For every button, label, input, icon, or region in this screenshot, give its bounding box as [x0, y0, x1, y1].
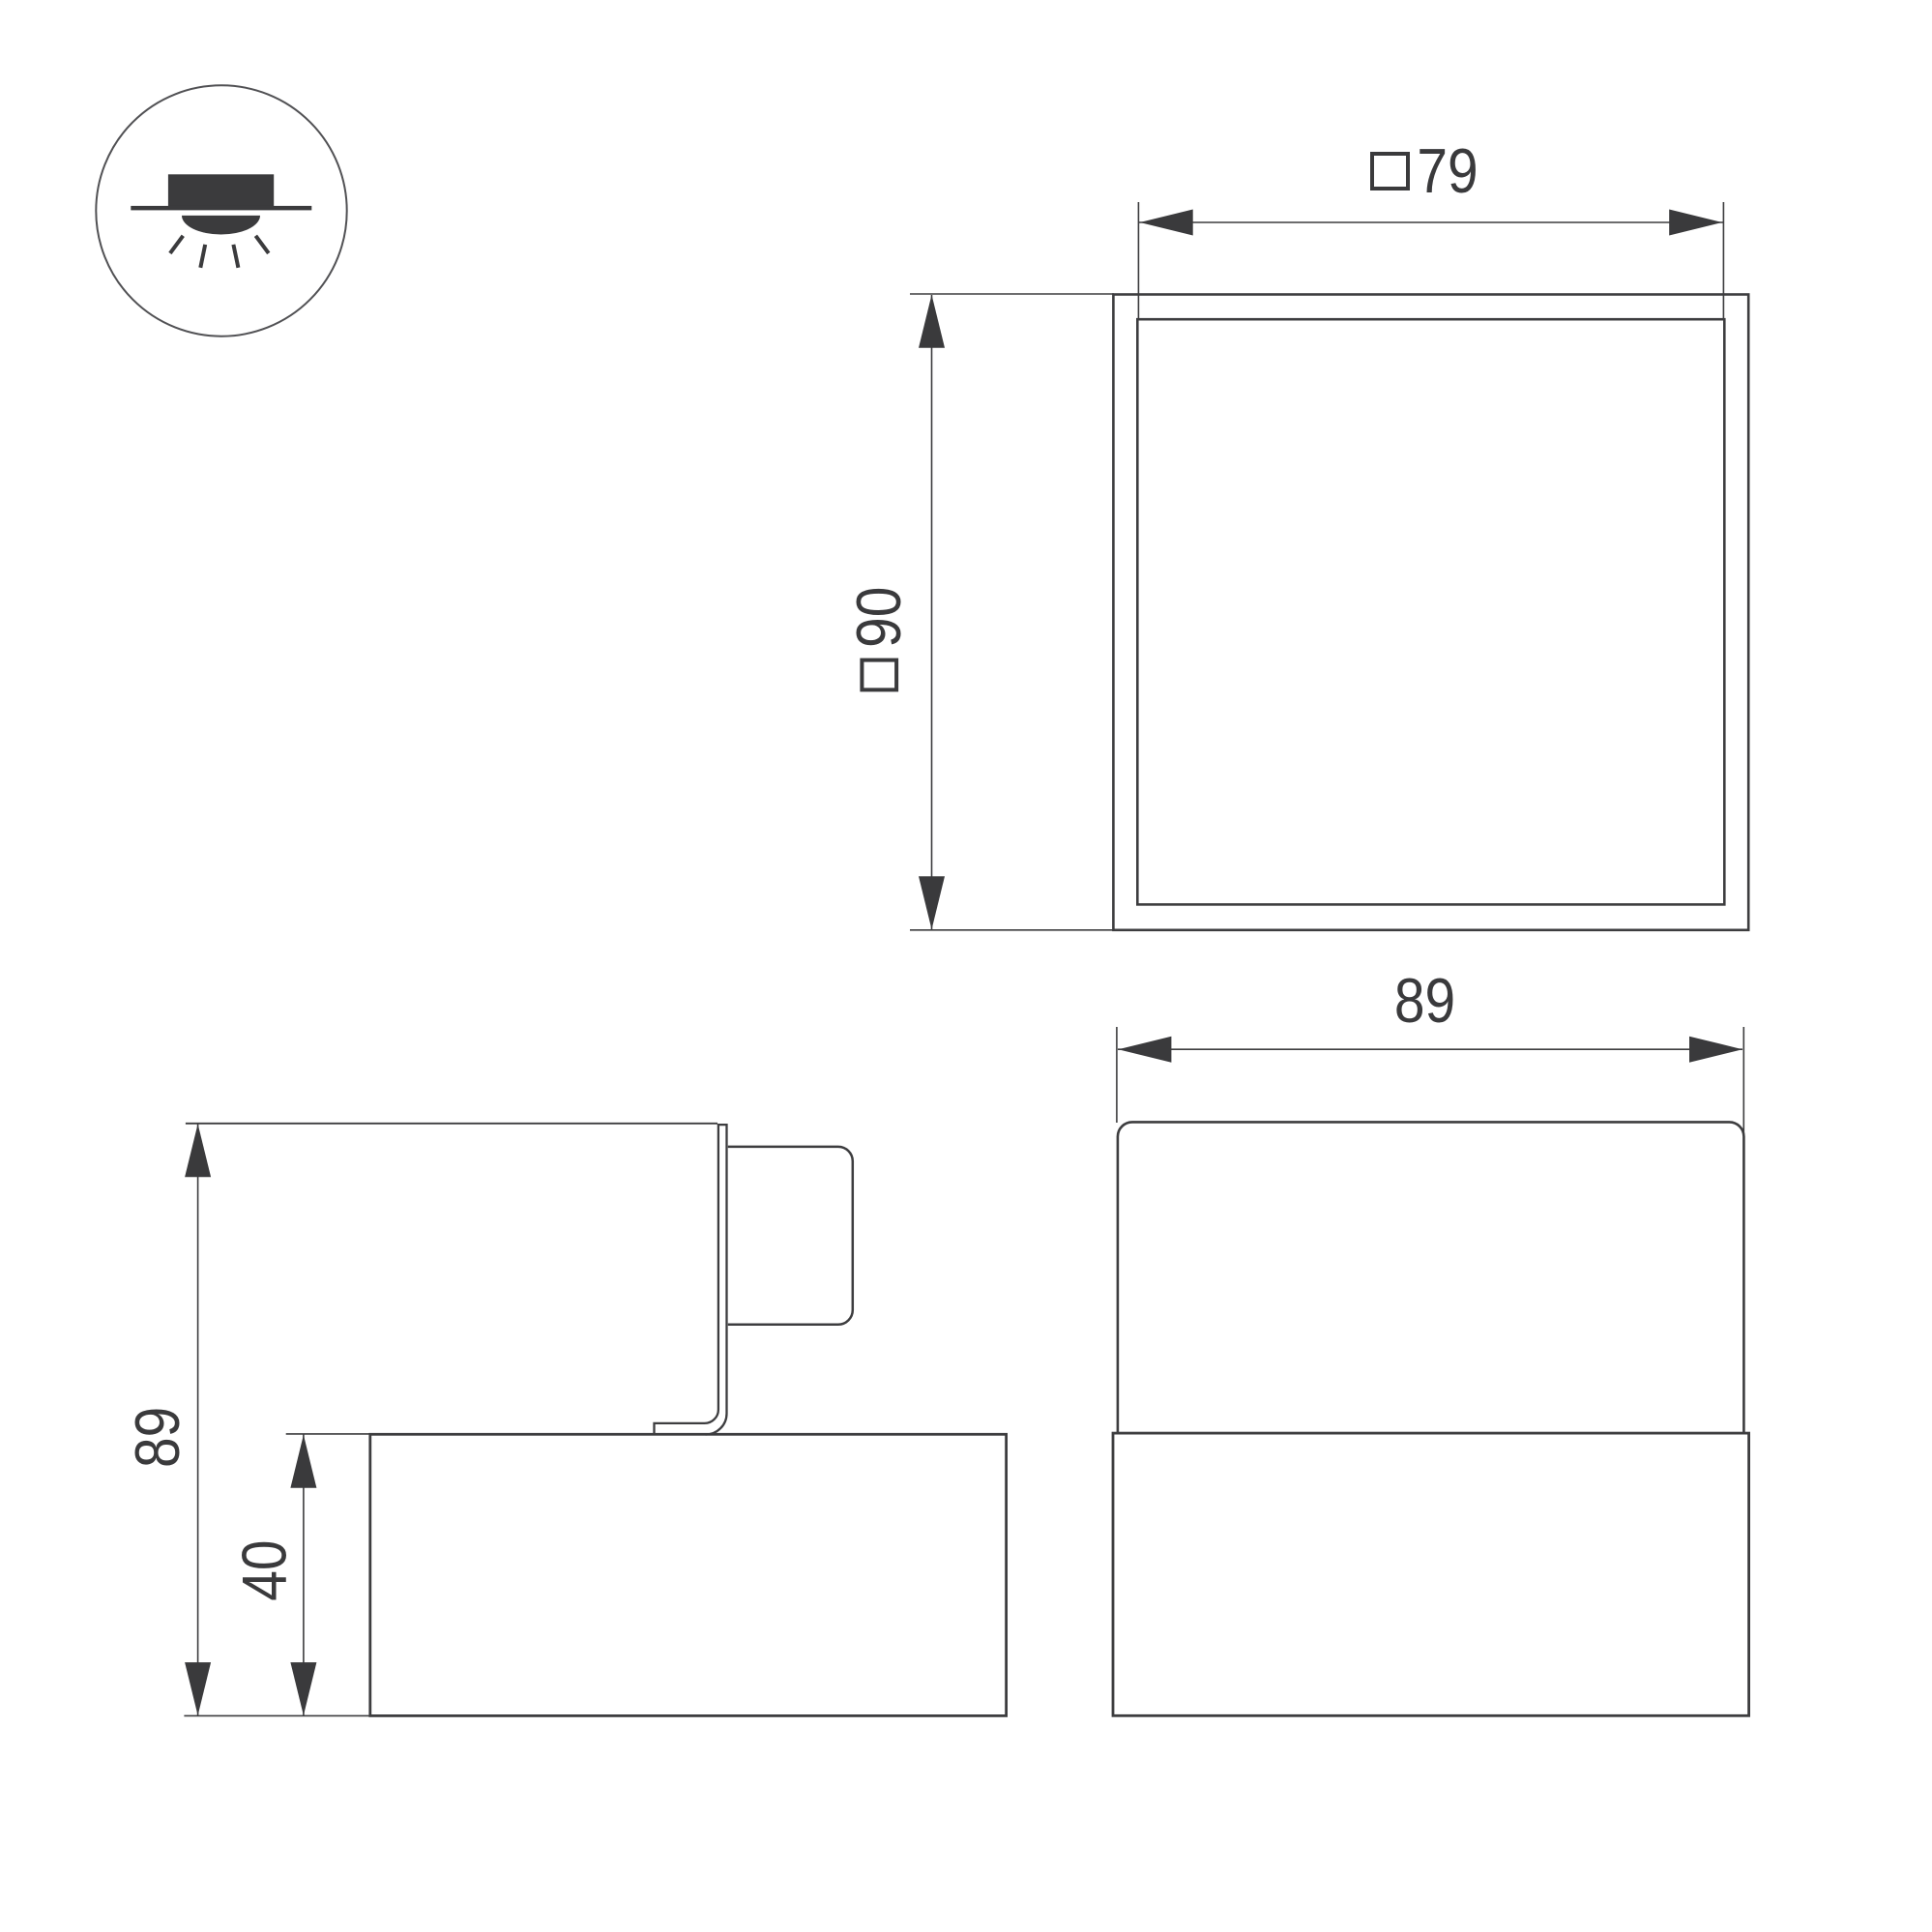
svg-text:79: 79 [1417, 135, 1478, 205]
svg-text:89: 89 [1394, 965, 1455, 1035]
svg-text:40: 40 [229, 1539, 299, 1600]
svg-text:89: 89 [123, 1407, 192, 1468]
svg-text:90: 90 [844, 587, 914, 648]
